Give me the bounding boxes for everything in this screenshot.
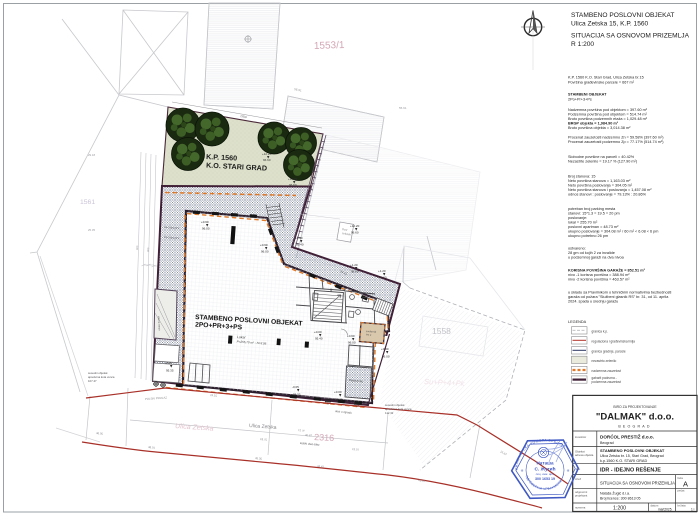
svg-text:96.00: 96.00 [261, 250, 269, 254]
svg-text:granica gradnje, parcele: granica gradnje, parcele [592, 349, 626, 353]
svg-text:+0.60: +0.60 [381, 347, 389, 351]
svg-text:A: A [683, 480, 688, 489]
svg-text:300 1653 19: 300 1653 19 [535, 477, 555, 481]
svg-text:96.00: 96.00 [382, 355, 390, 359]
svg-text:96.60: 96.60 [289, 183, 297, 187]
svg-text:garaža od požara "Službeni gl: garaža od požara "Službeni glasnik RS" b… [568, 295, 669, 299]
svg-text:K.P. 1560 K.O. Stari Grad, Uli: K.P. 1560 K.O. Stari Grad, Ulica Zetska … [568, 76, 644, 80]
svg-text:1561: 1561 [80, 199, 95, 206]
svg-text:potreban broj parking mesta: potreban broj parking mesta [568, 207, 616, 211]
svg-text:-0.05: -0.05 [165, 361, 172, 365]
svg-text:95.40: 95.40 [296, 243, 304, 247]
svg-text:ukupno poslovanje = 304.08 m²: ukupno poslovanje = 304.08 m² / 60 m² < … [568, 230, 658, 234]
svg-text:Neto površina stanova = 1,163.: Neto površina stanova = 1,163.03 m² [568, 179, 631, 183]
svg-text:1:200: 1:200 [613, 506, 626, 512]
svg-text:+12.20: +12.20 [262, 152, 272, 156]
svg-text:96.60: 96.60 [379, 276, 387, 280]
svg-text:poslovanje:: poslovanje: [568, 216, 587, 220]
svg-text:25.35: 25.35 [88, 228, 95, 232]
svg-text:+0.60: +0.60 [347, 334, 355, 338]
svg-text:KORISNA POVRŠINA GARAŽE = 852.: KORISNA POVRŠINA GARAŽE = 852.51 m² [568, 268, 646, 273]
svg-text:48.01: 48.01 [148, 445, 156, 450]
svg-text:44.47: 44.47 [317, 464, 325, 469]
svg-text:18.75: 18.75 [260, 437, 268, 442]
svg-text:odnos stanovi : poslovanje = 7: odnos stanovi : poslovanje = 79.13% : 20… [568, 193, 647, 197]
svg-text:2024. spada u srednju garažu: 2024. spada u srednju garažu [568, 300, 618, 304]
svg-text:Beograd: Beograd [600, 441, 614, 445]
svg-text:BIRO ZA PROJEKTOVANJE: BIRO ZA PROJEKTOVANJE [613, 405, 657, 409]
svg-text:ostvareno:: ostvareno: [568, 247, 586, 251]
svg-text:96.60: 96.60 [351, 270, 359, 274]
svg-text:PK 2: PK 2 [366, 334, 372, 337]
svg-text:granica k.p.: granica k.p. [592, 329, 609, 333]
svg-text:107.47: 107.47 [88, 379, 97, 383]
svg-text:+1.20: +1.20 [378, 269, 386, 273]
svg-text:IDR - IDEJNO REŠENJE: IDR - IDEJNO REŠENJE [600, 466, 661, 474]
svg-text:mart2025.: mart2025. [658, 508, 672, 512]
svg-text:Procenat zauzetosti podzemno Z: Procenat zauzetosti podzemno Zp = 77.17%… [568, 140, 664, 144]
svg-text:+0.00: +0.00 [314, 330, 322, 334]
svg-text:nivo -2 korisna površina = 463: nivo -2 korisna površina = 463.57 m² [568, 278, 630, 282]
svg-text:40.87: 40.87 [305, 433, 313, 438]
svg-text:+0.00: +0.00 [334, 390, 342, 394]
svg-text:Nataša Žugić d.i.a.: Nataša Žugić d.i.a. [600, 491, 630, 496]
svg-text:46.05: 46.05 [96, 431, 104, 436]
svg-text:Bruto površina podzemnih etaža: Bruto površina podzemnih etaža = 1,029.4… [568, 117, 648, 121]
svg-text:лиц. инж. арх.: лиц. инж. арх. [536, 472, 555, 476]
svg-text:Slobodne površine na parceli =: Slobodne površine na parceli = 40.42% [568, 155, 635, 159]
svg-text:95.35: 95.35 [166, 369, 174, 373]
svg-text:DORĆOL PRESTIŽ d.o.o.: DORĆOL PRESTIŽ d.o.o. [600, 433, 654, 440]
svg-text:11 ar: 11 ar [298, 428, 305, 432]
svg-text:Neto površina poslovanja = 304: Neto površina poslovanja = 304.05 m² [568, 184, 633, 188]
svg-text:19.07: 19.07 [352, 447, 360, 452]
svg-text:podzemna zauzetost: podzemna zauzetost [592, 380, 622, 384]
svg-text:Nezastrte zelenilo = 19.17 % (: Nezastrte zelenilo = 19.17 % (127.90 m²) [568, 160, 638, 164]
svg-text:55.91: 55.91 [399, 106, 407, 110]
svg-text:1553/1: 1553/1 [314, 40, 345, 52]
svg-text:nezastrto zelenilo: nezastrto zelenilo [592, 359, 617, 363]
svg-text:28 gm od kojih 2 za invalide: 28 gm od kojih 2 za invalide [568, 251, 615, 255]
svg-text:96.00: 96.00 [348, 341, 356, 345]
svg-text:R 1:200: R 1:200 [571, 41, 594, 48]
svg-text:+1.20: +1.20 [350, 263, 358, 267]
svg-text:45.35: 45.35 [255, 456, 263, 461]
svg-text:br.lista: br.lista [678, 504, 687, 508]
svg-text:Površina građevinske parcele: Površina građevinske parcele = 667 m² [568, 81, 635, 85]
svg-text:k.p.1560 K.O. STARI GRAD: k.p.1560 K.O. STARI GRAD [600, 459, 647, 463]
svg-text:2Po+Pr+3+Ps: 2Po+Pr+3+Ps [568, 98, 592, 102]
svg-text:pečat: pečat [678, 489, 685, 493]
svg-text:lokal = 255.70 m²: lokal = 255.70 m² [568, 221, 598, 225]
svg-text:+0.60: +0.60 [260, 243, 268, 247]
svg-text:SITUACIJA SA OSNOVOM PRIZEMLJA: SITUACIJA SA OSNOVOM PRIZEMLJA [571, 33, 690, 40]
svg-text:"DALMAK" d.o.o.: "DALMAK" d.o.o. [596, 412, 674, 423]
svg-text:Ulica Zetska 15, K.P. 1560: Ulica Zetska 15, K.P. 1560 [571, 21, 649, 28]
svg-text:nivo -1 korisna površina = 388: nivo -1 korisna površina = 388.94 m² [568, 273, 630, 277]
svg-text:112.32: 112.32 [385, 411, 394, 415]
svg-text:2316: 2316 [314, 432, 335, 443]
svg-text:Broj licence: 300 8613 05: Broj licence: 300 8613 05 [600, 497, 641, 501]
svg-text:LEGENDA: LEGENDA [568, 320, 587, 324]
svg-text:96.60: 96.60 [351, 231, 359, 235]
svg-text:24.15: 24.15 [210, 393, 218, 398]
svg-text:nadzemna zauzetost: nadzemna zauzetost [592, 369, 622, 373]
svg-text:STAMBENI OBJEKAT: STAMBENI OBJEKAT [568, 93, 607, 97]
svg-text:900: 900 [146, 247, 150, 252]
svg-text:600: 600 [135, 245, 139, 250]
svg-text:-0.05: -0.05 [292, 385, 299, 389]
svg-text:projektant: projektant [575, 494, 588, 498]
svg-text:Наташа: Наташа [536, 461, 554, 466]
svg-text:Ulica Zetska br. 15, Stari Gra: Ulica Zetska br. 15, Stari Grad, Beograd [600, 454, 664, 458]
svg-text:BEOGRAD: BEOGRAD [618, 425, 651, 429]
svg-text:29.18: 29.18 [88, 153, 95, 157]
svg-text:95.40: 95.40 [315, 337, 323, 341]
svg-text:u skladu sa Pravilnikom o tehn: u skladu sa Pravilnikom o tehničkim norm… [568, 291, 672, 295]
svg-text:1 i: 1 i [691, 508, 695, 512]
svg-text:investitor: investitor [575, 435, 586, 439]
svg-text:1558: 1558 [432, 326, 451, 336]
svg-text:+0.00: +0.00 [295, 236, 303, 240]
svg-text:SITUACIJA SA OSNOVOM PRIZEMLJA: SITUACIJA SA OSNOVOM PRIZEMLJA [600, 481, 675, 486]
svg-text:Procenat zauzetosti nadzemno Z: Procenat zauzetosti nadzemno Zn = 59.58%… [568, 136, 664, 140]
svg-text:+12.20: +12.20 [288, 177, 298, 181]
svg-text:STAMBENO POSLOVNI OBJEKAT: STAMBENO POSLOVNI OBJEKAT [600, 448, 665, 453]
svg-text:Neto površina stanova i poslov: Neto površina stanova i poslovanja = 1,4… [568, 188, 652, 192]
svg-text:95.40: 95.40 [335, 398, 343, 402]
svg-text:ukupno potrebno 26 pm: ukupno potrebno 26 pm [568, 234, 608, 238]
svg-text:95.35: 95.35 [293, 393, 301, 397]
svg-text:Broj stanova: 15: Broj stanova: 15 [568, 175, 595, 179]
svg-text:Nadzemna površina pod objektom: Nadzemna površina pod objektom = 397.60 … [568, 108, 648, 112]
svg-text:stanovi: 15*1.3 = 19.5 = 20 pm: stanovi: 15*1.3 = 19.5 = 20 pm [568, 212, 620, 216]
svg-text:crtež: crtež [575, 477, 582, 481]
svg-text:adresa objekta: adresa objekta [575, 453, 594, 457]
svg-text:poslovni apartman = 48.73 m²: poslovni apartman = 48.73 m² [568, 225, 619, 229]
svg-text:+12.20: +12.20 [350, 224, 360, 228]
svg-text:STAMBENO POSLOVNI OBJEKAT: STAMBENO POSLOVNI OBJEKAT [571, 12, 674, 19]
svg-text:BRGP objekta = 1,984.90 m²: BRGP objekta = 1,984.90 m² [568, 122, 619, 126]
svg-text:razmera: razmera [575, 506, 586, 510]
svg-text:regulaciona i građevinska lini: regulaciona i građevinska linija [592, 339, 636, 343]
svg-text:96.00: 96.00 [202, 227, 210, 231]
svg-text:Podzemna površina pod objektom: Podzemna površina pod objektom = 514.74 … [568, 113, 648, 117]
svg-text:96.60: 96.60 [263, 158, 271, 162]
svg-text:Bruto površina objekta = 3,014: Bruto površina objekta = 3,014.38 m² [568, 126, 631, 130]
svg-text:+0.60: +0.60 [201, 220, 209, 224]
svg-text:u podzemnoj garaži na dva nivo: u podzemnoj garaži na dva nivoa [568, 256, 625, 260]
